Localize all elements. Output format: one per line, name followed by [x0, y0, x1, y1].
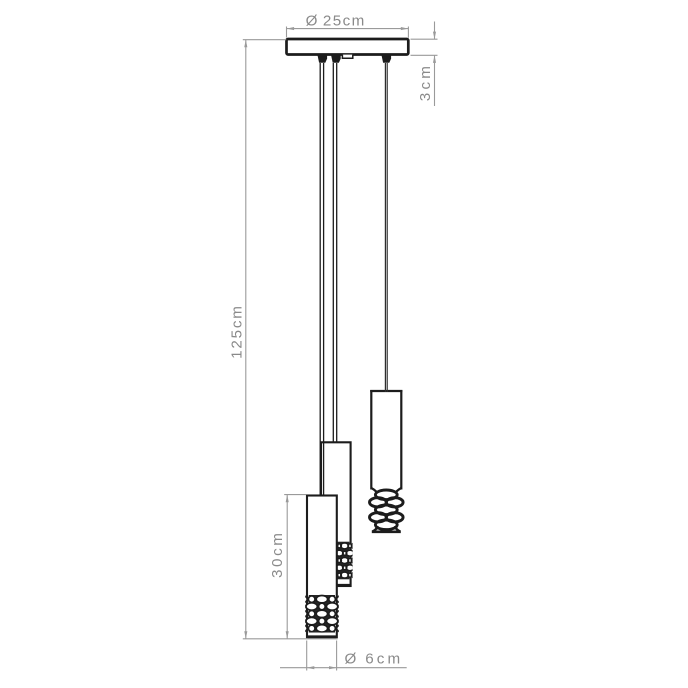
svg-text:Ø 25cm: Ø 25cm: [306, 12, 366, 29]
svg-text:3cm: 3cm: [417, 63, 434, 101]
svg-text:Ø 6cm: Ø 6cm: [345, 651, 404, 668]
svg-text:125cm: 125cm: [229, 304, 246, 359]
svg-text:30cm: 30cm: [269, 530, 286, 578]
